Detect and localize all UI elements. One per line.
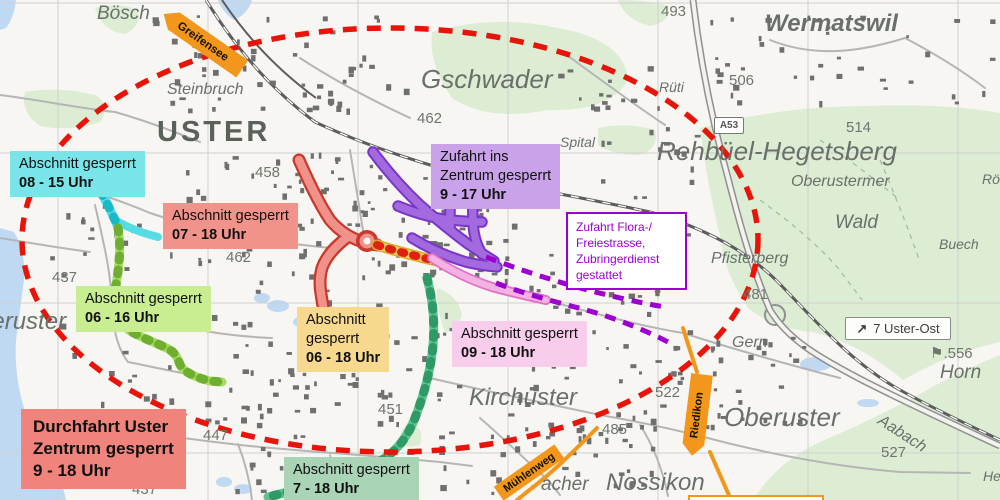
closure-text: Abschnitt gesperrt [85,290,202,309]
clipped-signpost-bottom [688,495,824,500]
closure-label-pink: Abschnitt gesperrt 09 - 18 Uhr [452,321,587,367]
closure-time: 9 - 17 Uhr [440,186,551,205]
closure-time: 07 - 18 Uhr [172,226,289,245]
permission-text: Zubringerdienst [576,251,677,267]
closure-text: Abschnitt gesperrt [19,155,136,174]
closure-label-red: Abschnitt gesperrt 07 - 18 Uhr [163,203,298,249]
closure-time: 7 - 18 Uhr [293,480,410,499]
closure-text: Zufahrt ins [440,148,551,167]
uster-closure-map: BöschSteinbruchUSTERGschwader462Wermatsw… [0,0,1000,500]
closure-text: Abschnitt gesperrt [172,207,289,226]
uster-ost-exit-label: 7 Uster-Ost [873,321,939,336]
closure-label-purple: Zufahrt ins Zentrum gesperrt 9 - 17 Uhr [431,144,560,209]
closure-label-cyan: Abschnitt gesperrt 08 - 15 Uhr [10,151,145,197]
permission-text: Zufahrt Flora-/ [576,219,677,235]
closure-label-yellow: Abschnitt gesperrt 06 - 18 Uhr [297,307,389,372]
closure-text: Abschnitt gesperrt [461,325,578,344]
closure-label-green: Abschnitt gesperrt 06 - 16 Uhr [76,286,211,332]
closure-text: Abschnitt [306,311,380,330]
a53-route-label: A53 [720,120,738,131]
northeast-arrow-icon: ↗ [856,321,867,337]
closure-text: Abschnitt gesperrt [293,461,410,480]
closure-time: 08 - 15 Uhr [19,174,136,193]
closure-label-durchfahrt: Durchfahrt Uster Zentrum gesperrt 9 - 18… [21,409,186,489]
closure-time: 06 - 16 Uhr [85,309,202,328]
permission-text: Freiestrasse, [576,235,677,251]
closure-time: 06 - 18 Uhr [306,349,380,368]
permission-text: gestattet [576,267,677,283]
closure-time: 9 - 18 Uhr [33,460,174,482]
closure-text: gesperrt [306,330,380,349]
uster-ost-exit-sign: ↗ 7 Uster-Ost [845,317,951,340]
closure-time: 09 - 18 Uhr [461,344,578,363]
permission-box: Zufahrt Flora-/ Freiestrasse, Zubringerd… [566,212,687,290]
closure-text: Durchfahrt Uster [33,416,174,438]
riedikon-signpost-label: Riedikon [688,391,706,439]
closure-text: Zentrum gesperrt [440,167,551,186]
a53-route-badge: A53 [714,117,744,134]
closure-text: Zentrum gesperrt [33,438,174,460]
closure-label-sage: Abschnitt gesperrt 7 - 18 Uhr [284,457,419,500]
